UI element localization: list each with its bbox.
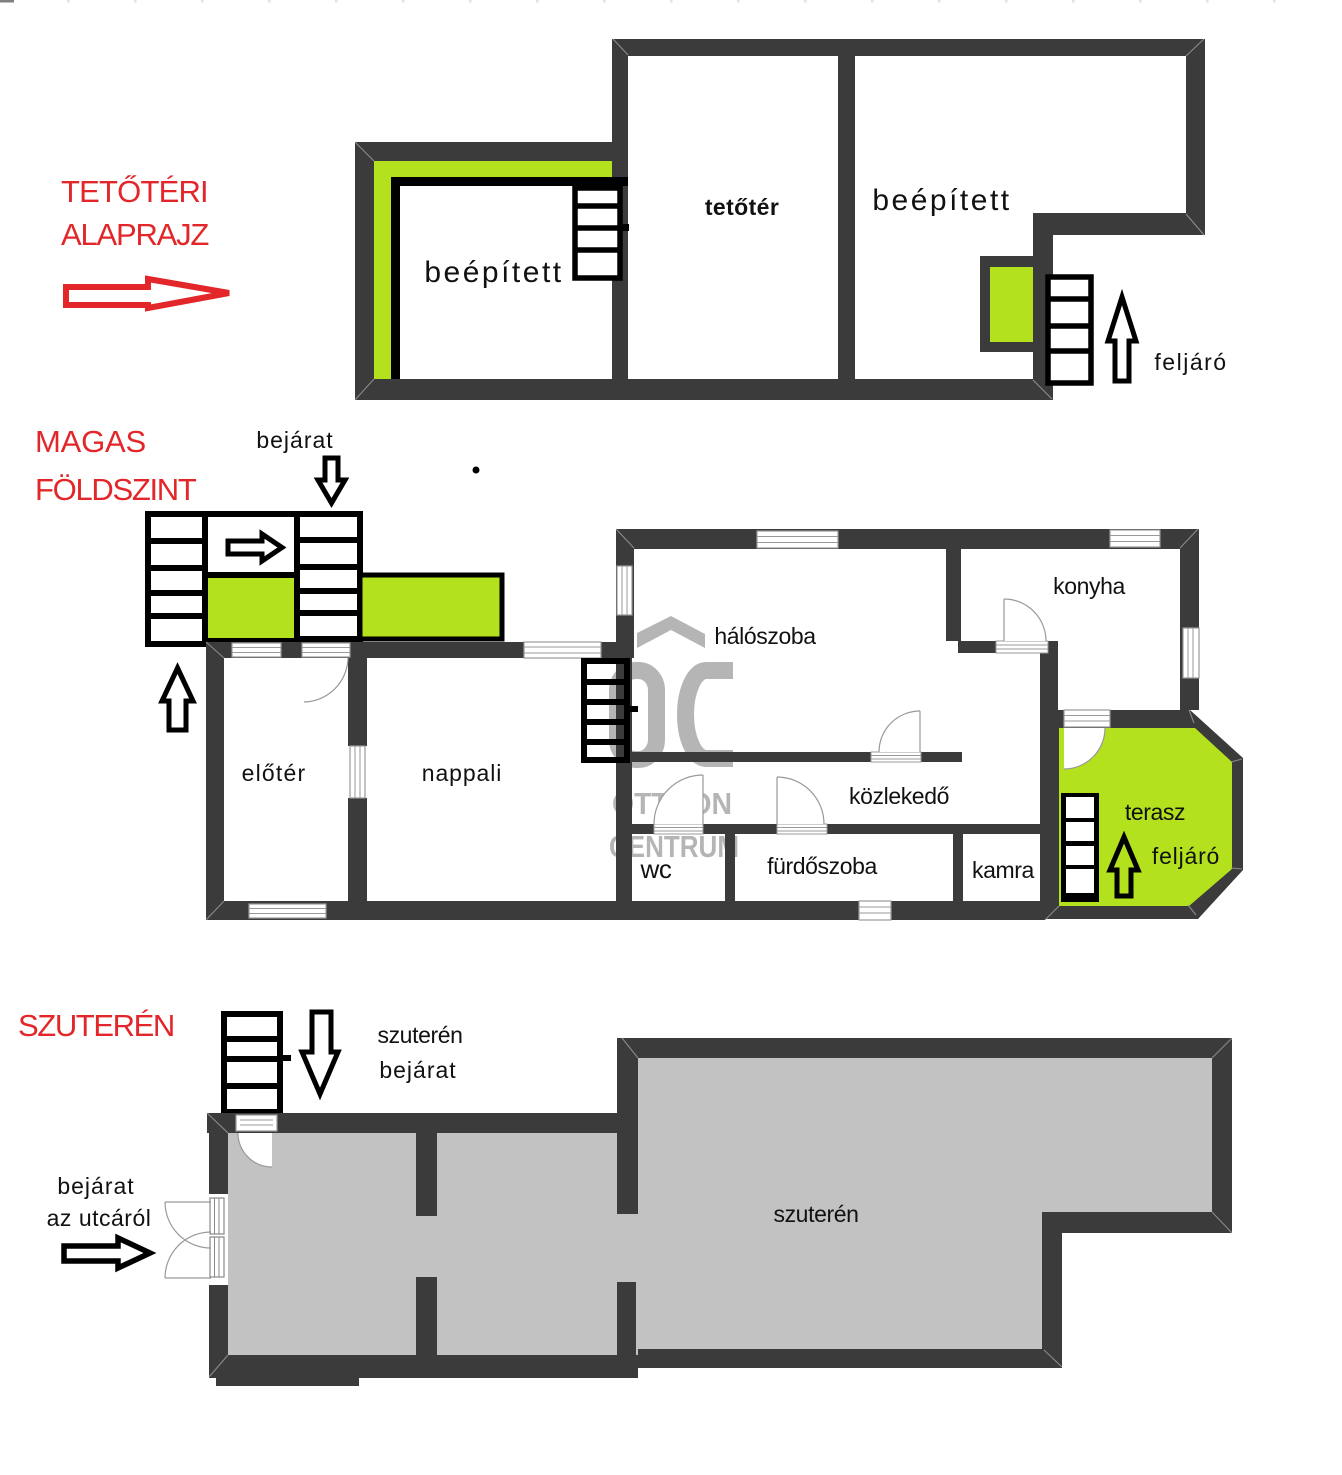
svg-text:bejárat: bejárat [57,1173,134,1199]
svg-text:ALAPRAJZ: ALAPRAJZ [61,217,208,252]
svg-text:konyha: konyha [1053,573,1125,599]
svg-text:feljáró: feljáró [1154,349,1227,375]
svg-text:SZUTERÉN: SZUTERÉN [18,1008,174,1043]
svg-text:bejárat: bejárat [256,427,333,453]
svg-text:FÖLDSZINT: FÖLDSZINT [35,472,197,507]
svg-text:bejárat: bejárat [379,1057,456,1083]
svg-text:hálószoba: hálószoba [714,623,816,649]
svg-text:az utcáról: az utcáról [47,1205,152,1231]
svg-text:MAGAS: MAGAS [35,424,146,459]
svg-text:wc: wc [640,854,672,884]
svg-text:szuterén: szuterén [773,1201,858,1227]
svg-text:szuterén: szuterén [377,1022,462,1048]
svg-text:feljáró: feljáró [1152,843,1220,869]
svg-text:fürdőszoba: fürdőszoba [767,853,877,879]
svg-text:előtér: előtér [242,760,307,786]
svg-text:terasz: terasz [1125,799,1185,825]
svg-text:nappali: nappali [422,760,502,786]
svg-text:beépített: beépített [872,184,1011,217]
svg-text:beépített: beépített [424,256,563,289]
svg-text:közlekedő: közlekedő [849,783,949,809]
svg-text:tetőtér: tetőtér [705,194,779,220]
svg-text:kamra: kamra [972,857,1035,883]
svg-text:TETŐTÉRI: TETŐTÉRI [61,174,208,209]
